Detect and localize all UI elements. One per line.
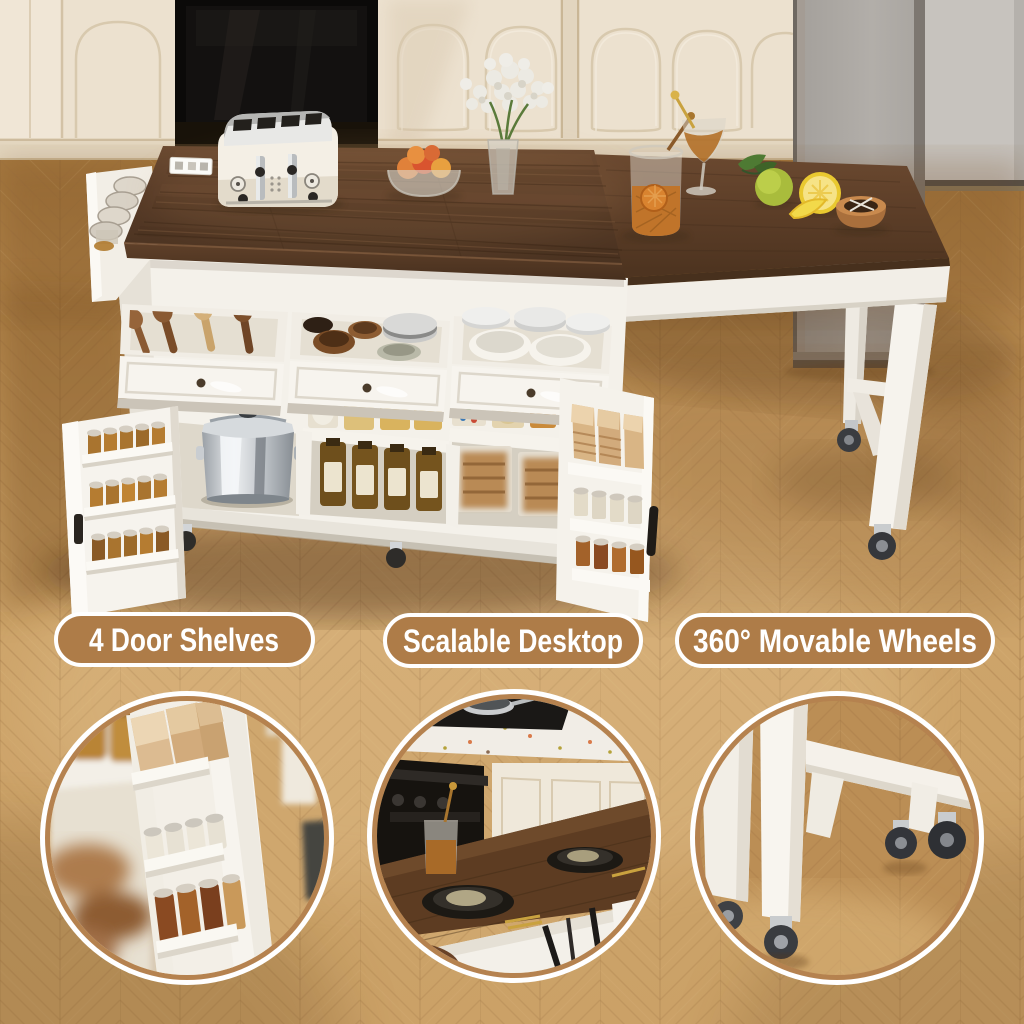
svg-text:Scalable Desktop: Scalable Desktop	[403, 623, 623, 659]
svg-text:360° Movable Wheels: 360° Movable Wheels	[693, 623, 977, 659]
svg-text:4 Door Shelves: 4 Door Shelves	[89, 622, 279, 658]
